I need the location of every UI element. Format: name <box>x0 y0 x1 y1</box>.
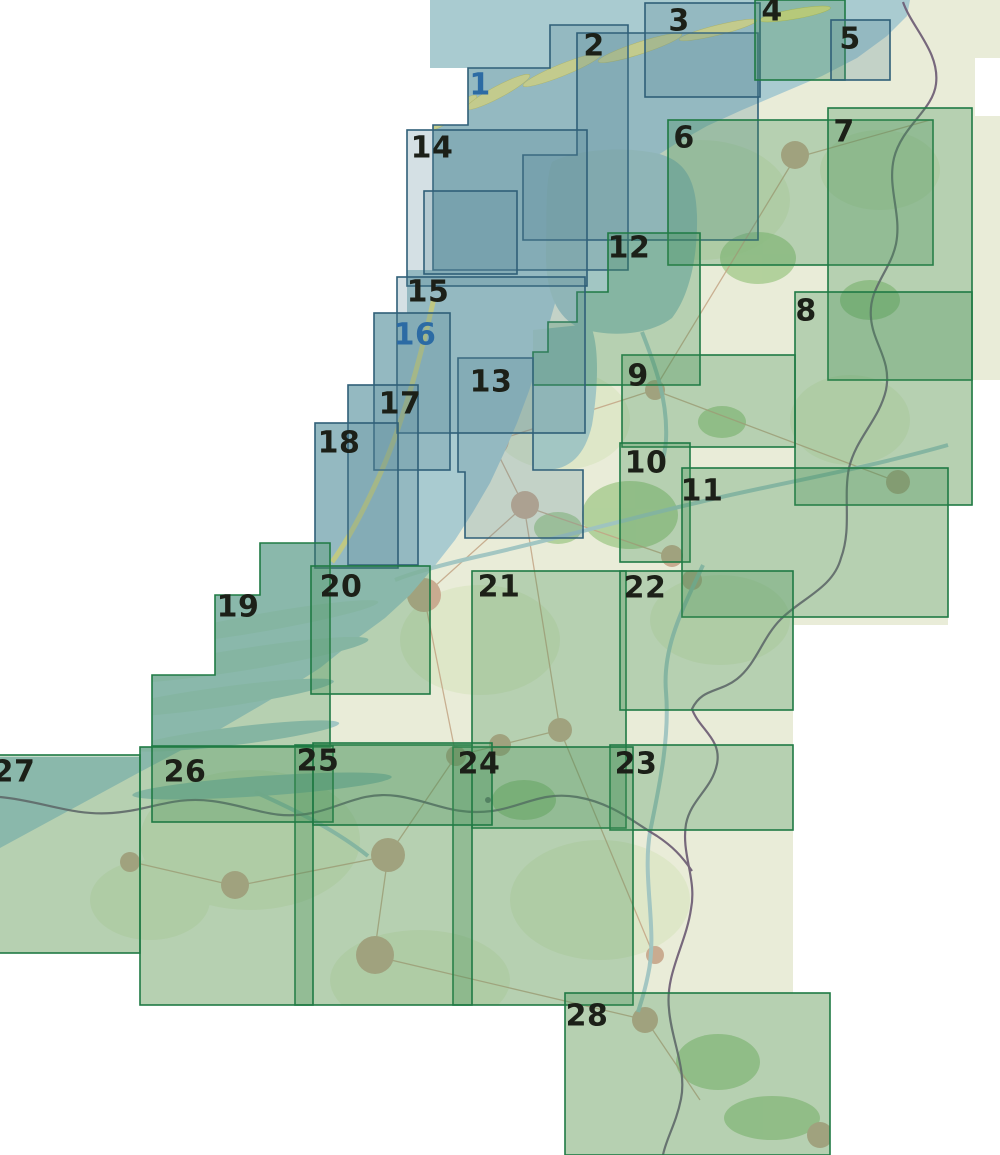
sheet-number-28: 28 <box>566 999 609 1034</box>
sheet-number-15: 15 <box>407 275 450 310</box>
sheet-number-9: 9 <box>627 359 648 394</box>
map-index-page: 1234567891011121314151617181920212223242… <box>0 0 1000 1155</box>
sheet-number-20: 20 <box>320 570 363 605</box>
map-index-canvas: 1234567891011121314151617181920212223242… <box>0 0 1000 1155</box>
sheet-number-11: 11 <box>681 474 724 509</box>
sheet-number-4: 4 <box>761 0 782 29</box>
sheet-number-1: 1 <box>469 68 490 103</box>
sheet-number-18: 18 <box>318 426 361 461</box>
sheet-outline-3 <box>645 3 760 97</box>
sheet-number-26: 26 <box>164 755 207 790</box>
sheet-number-24: 24 <box>458 747 501 782</box>
sheet-number-14: 14 <box>411 131 454 166</box>
sheet-number-6: 6 <box>673 121 694 156</box>
sheet-number-22: 22 <box>624 571 667 606</box>
sheet-outline-extra <box>424 191 517 274</box>
sheet-number-13: 13 <box>470 365 513 400</box>
sheet-number-3: 3 <box>668 4 689 39</box>
sheet-number-23: 23 <box>615 747 658 782</box>
sheet-number-7: 7 <box>833 115 854 150</box>
sheet-number-19: 19 <box>217 590 260 625</box>
sheet-number-25: 25 <box>297 744 340 779</box>
sheet-number-27: 27 <box>0 755 35 790</box>
sheet-number-17: 17 <box>379 387 422 422</box>
sheet-number-8: 8 <box>795 294 816 329</box>
sheet-number-12: 12 <box>608 231 651 266</box>
sheet-number-5: 5 <box>839 22 860 57</box>
sheet-number-16: 16 <box>394 318 437 353</box>
sheet-number-21: 21 <box>478 570 521 605</box>
sheet-number-10: 10 <box>625 446 668 481</box>
sheet-number-2: 2 <box>583 29 604 64</box>
